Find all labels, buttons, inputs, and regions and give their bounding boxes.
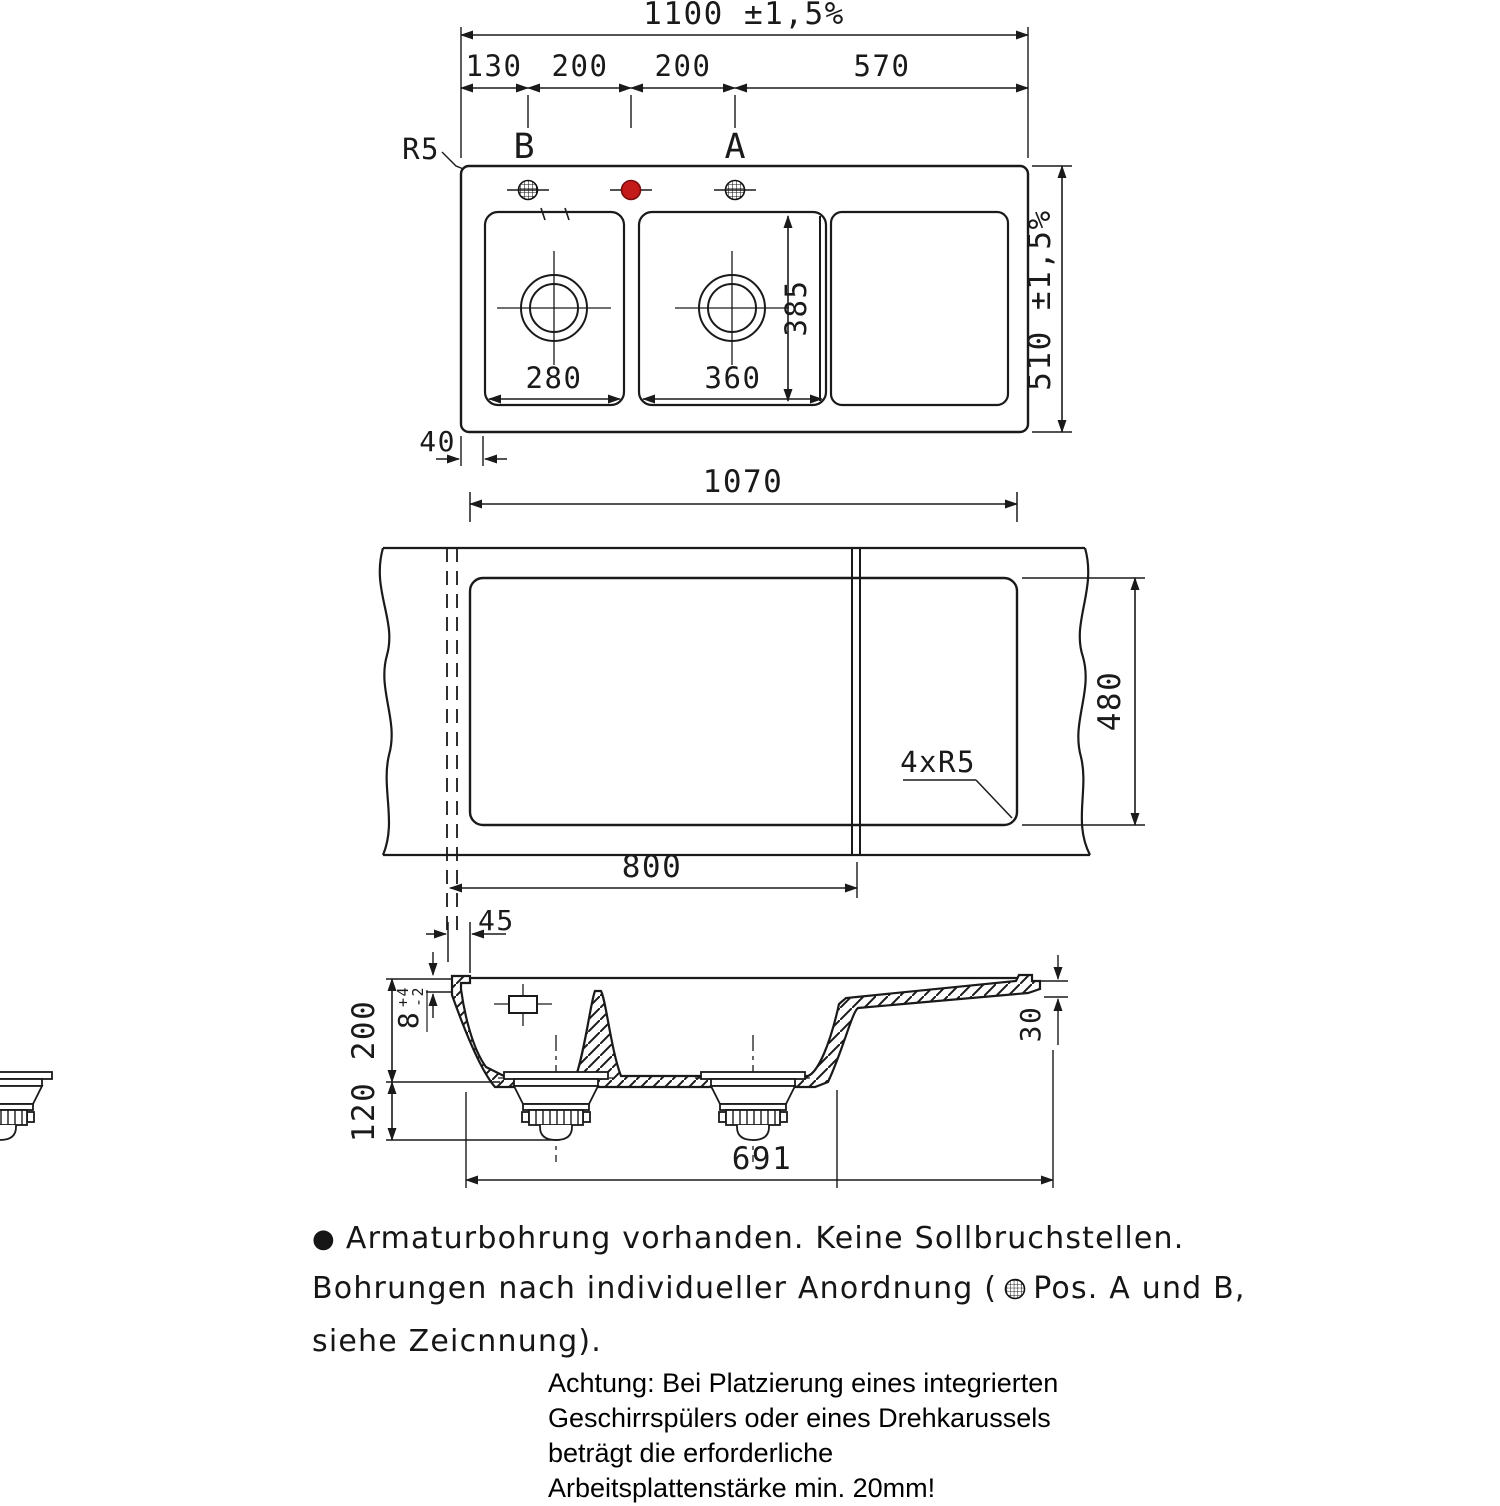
- dim-seg-130: 130: [466, 49, 523, 83]
- cutout-view: 1070 480 4xR5: [380, 464, 1145, 973]
- notes-line-1-text: Armaturbohrung vorhanden. Keine Sollbruc…: [346, 1221, 1185, 1256]
- section-shell: [452, 975, 1040, 1087]
- filled-circle-icon: ●: [312, 1224, 336, 1254]
- dim-bowl2-385-label: 385: [779, 280, 813, 337]
- front-edge-dashed-lines: [447, 548, 457, 930]
- warning-block: Achtung: Bei Platzierung eines integrier…: [548, 1366, 1058, 1506]
- drain-assembly: [0, 1072, 52, 1140]
- cutout-outline: [470, 578, 1017, 825]
- notes-block: ●Armaturbohrung vorhanden. Keine Sollbru…: [312, 1214, 1412, 1367]
- dim-cutout-1070: 1070: [470, 464, 1017, 522]
- cutout-radius-note: 4xR5: [900, 745, 1012, 818]
- faucet-hole-section-icon: [494, 984, 552, 1026]
- dim-depth-510-label: 510 ±1,5%: [1022, 209, 1058, 390]
- cutout-radius-label: 4xR5: [900, 745, 976, 779]
- dim-board-30-label: 30: [1014, 1006, 1047, 1043]
- pos-label-b: B: [513, 127, 534, 167]
- notes-line-3: siehe Zeicnnung).: [312, 1317, 1412, 1367]
- cut-line-double: [852, 548, 860, 855]
- notes-line-1: ●Armaturbohrung vorhanden. Keine Sollbru…: [312, 1214, 1412, 1264]
- dim-seg-200b: 200: [655, 49, 712, 83]
- warning-line-1: Achtung: Bei Platzierung eines integrier…: [548, 1366, 1058, 1401]
- section-view: 200 120 8 +4 -2 30: [0, 952, 1068, 1188]
- notes-line-3-text: siehe Zeicnnung).: [312, 1324, 602, 1359]
- notes-line-2-pre: Bohrungen nach individueller Anordnung (: [312, 1271, 997, 1306]
- dim-board-30: 30: [1014, 955, 1068, 1045]
- pos-label-a: A: [724, 127, 745, 167]
- countertop-band: [380, 548, 1090, 855]
- dim-segments: 130 200 200 570: [461, 49, 1028, 88]
- dim-cutout-1070-label: 1070: [703, 464, 784, 500]
- dim-span-691-label: 691: [732, 1141, 793, 1177]
- dim-offset-45: 45: [426, 904, 515, 973]
- dim-edge-40-label: 40: [419, 425, 456, 458]
- dim-total-width: 1100 ±1,5%: [461, 0, 1028, 35]
- dim-cut-800: 800: [450, 849, 857, 898]
- warning-line-4: Arbeitsplattenstärke min. 20mm!: [548, 1471, 1058, 1506]
- corner-radius-label: R5: [402, 132, 440, 166]
- dim-section-120-label: 120: [346, 1082, 382, 1143]
- warning-line-3: beträgt die erforderliche: [548, 1436, 1058, 1471]
- hatched-circle-icon: [1003, 1267, 1027, 1317]
- corner-radius-note: R5: [402, 132, 466, 170]
- dim-seg-570: 570: [854, 49, 911, 83]
- dim-offset-45-label: 45: [478, 904, 515, 937]
- dim-seg-200a: 200: [552, 49, 609, 83]
- dim-depth-510: 510 ±1,5%: [1022, 166, 1072, 432]
- dim-rim-thickness: 8 +4 -2: [392, 952, 452, 1032]
- dim-bowl1-280-label: 280: [526, 361, 583, 395]
- dim-rim-thickness-label: 8: [392, 1011, 425, 1029]
- break-edge-right: [1078, 548, 1090, 855]
- dim-rim-tol-minus: -2: [409, 986, 427, 1007]
- break-edge-left: [380, 548, 392, 855]
- notes-line-2: Bohrungen nach individueller Anordnung (…: [312, 1264, 1412, 1317]
- dim-cut-800-label: 800: [622, 849, 683, 885]
- dim-bowl2-360-label: 360: [705, 361, 762, 395]
- dim-cutout-480-label: 480: [1092, 671, 1128, 732]
- dim-total-width-label: 1100 ±1,5%: [643, 0, 845, 32]
- notes-line-2-post: Pos. A und B,: [1033, 1271, 1245, 1306]
- warning-line-2: Geschirrspülers oder eines Drehkarussels: [548, 1401, 1058, 1436]
- top-view: 1100 ±1,5% 130 200 200 570 R5 B A: [402, 0, 1072, 466]
- dim-section-200-label: 200: [346, 1000, 382, 1061]
